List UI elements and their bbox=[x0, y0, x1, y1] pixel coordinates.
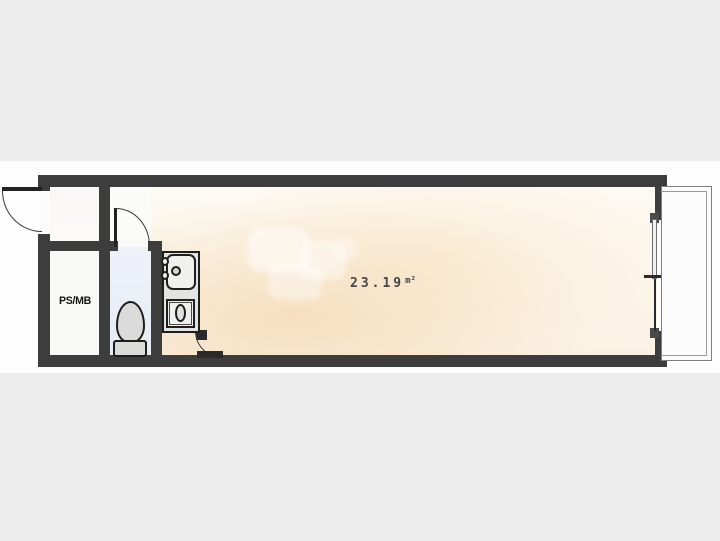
sink-fitting-icon bbox=[161, 271, 169, 280]
sliding-window-pane-icon bbox=[652, 219, 657, 279]
entrance-hall bbox=[50, 181, 99, 247]
sliding-window-pane-icon bbox=[654, 279, 656, 331]
room-door-leaf-icon bbox=[197, 351, 223, 358]
ps-mb-label: PS/MB bbox=[53, 294, 97, 308]
wall-entrance-partition bbox=[99, 181, 110, 247]
watermark bbox=[333, 238, 359, 260]
balcony-railing-line bbox=[661, 191, 707, 356]
wall-psmb-toilet bbox=[99, 247, 110, 357]
main-room bbox=[151, 181, 657, 357]
floor-area-unit: m² bbox=[405, 276, 416, 286]
watermark bbox=[268, 262, 322, 300]
burner-icon bbox=[175, 304, 186, 322]
wall-left-lower bbox=[38, 234, 50, 367]
toilet-tank-icon bbox=[113, 340, 147, 357]
sink-fitting-icon bbox=[161, 257, 169, 266]
floor-area-label: 23.19m² bbox=[350, 271, 416, 291]
wall-top bbox=[38, 175, 667, 187]
toilet-bowl-icon bbox=[116, 301, 145, 343]
window-latch-icon bbox=[644, 275, 661, 278]
wall-toilet-kitchen bbox=[151, 241, 162, 357]
faucet-icon bbox=[171, 266, 181, 276]
floor-area-value: 23.19 bbox=[350, 276, 404, 291]
